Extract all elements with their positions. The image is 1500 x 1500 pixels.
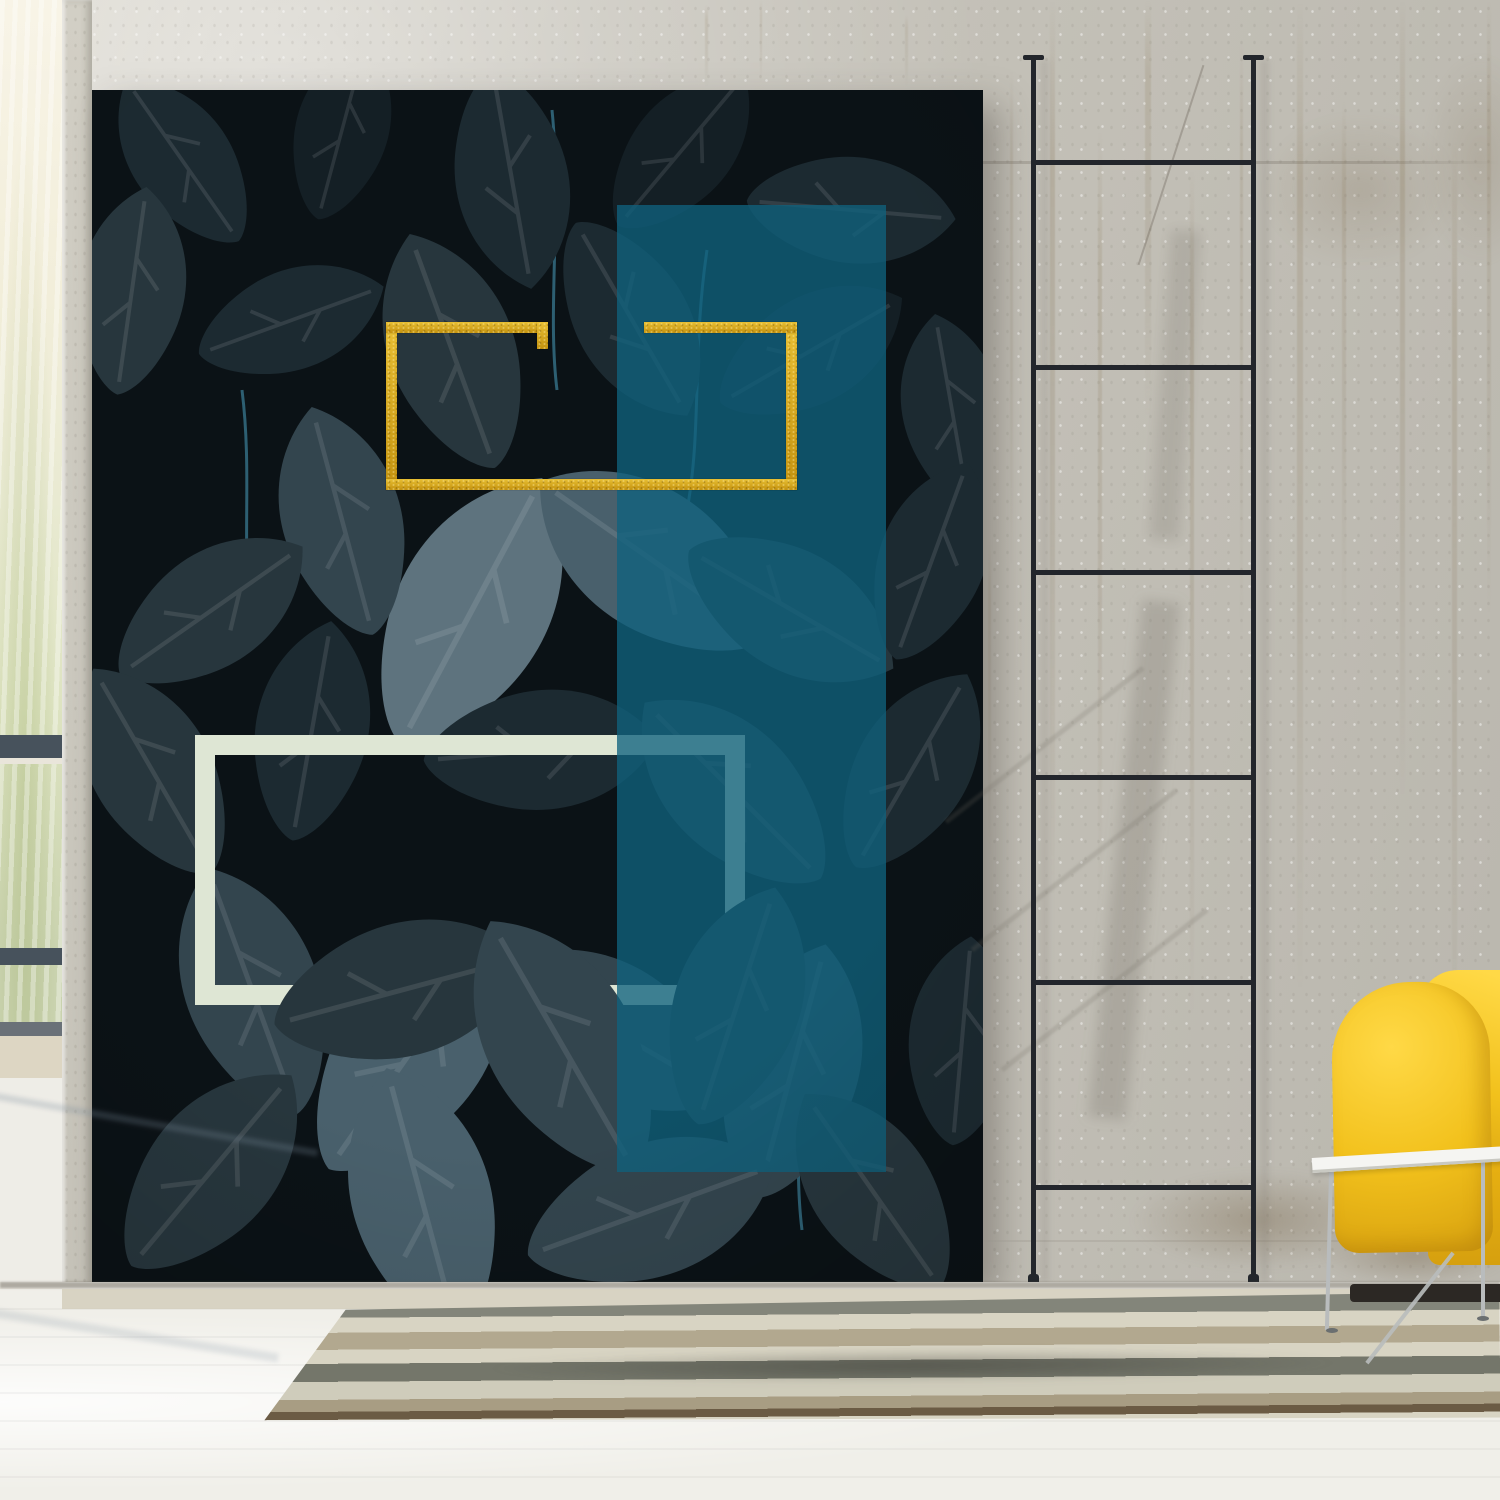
ladder-rung — [1033, 980, 1256, 985]
wall-stain-streak — [905, 15, 908, 87]
ladder-rail-left — [1031, 57, 1036, 1282]
wall-stain-streak — [1010, 70, 1013, 570]
interior-scene — [0, 0, 1500, 1500]
ladder-rail-right — [1251, 57, 1256, 1282]
window-mullion-highlight — [0, 758, 62, 764]
striped-rug — [250, 1292, 1500, 1433]
armchair-armrest — [1331, 981, 1494, 1254]
ladder-rail-cap — [1023, 55, 1044, 60]
ladder-rail-shadow — [1040, 60, 1049, 1282]
window-ledge-edge — [0, 1022, 62, 1036]
poster-vignette — [92, 90, 983, 1285]
table-foot — [1477, 1316, 1489, 1321]
wall-stain-streak — [760, 0, 762, 85]
window-sill — [0, 1036, 62, 1078]
window-pane — [0, 0, 62, 1040]
ladder-rung — [1033, 160, 1256, 165]
ladder-rail-shadow — [1260, 60, 1269, 1282]
window-mullion-bar — [0, 735, 62, 758]
wall-stain-streak — [1240, 40, 1243, 640]
concrete-column — [62, 0, 92, 1285]
table-leg — [1481, 1160, 1485, 1318]
ladder-rung — [1033, 775, 1256, 780]
wall-stain-streak — [1050, 0, 1055, 900]
ladder-rung — [1033, 1185, 1256, 1190]
wall-stain-streak — [1098, 130, 1102, 910]
leaf-poster-artwork — [92, 90, 983, 1285]
wall-stain-streak — [988, 540, 991, 860]
ladder-rung — [1033, 365, 1256, 370]
window-mullion-bar — [0, 948, 62, 965]
table-foot — [1326, 1328, 1338, 1333]
ladder-rail-cap — [1243, 55, 1264, 60]
ladder-rung — [1033, 570, 1256, 575]
wall-stain-streak — [1452, 140, 1457, 1090]
wall-stain-streak — [705, 5, 708, 87]
wall-stain-streak — [1145, 0, 1151, 420]
wall-floor-shadow-line — [0, 1282, 1500, 1288]
